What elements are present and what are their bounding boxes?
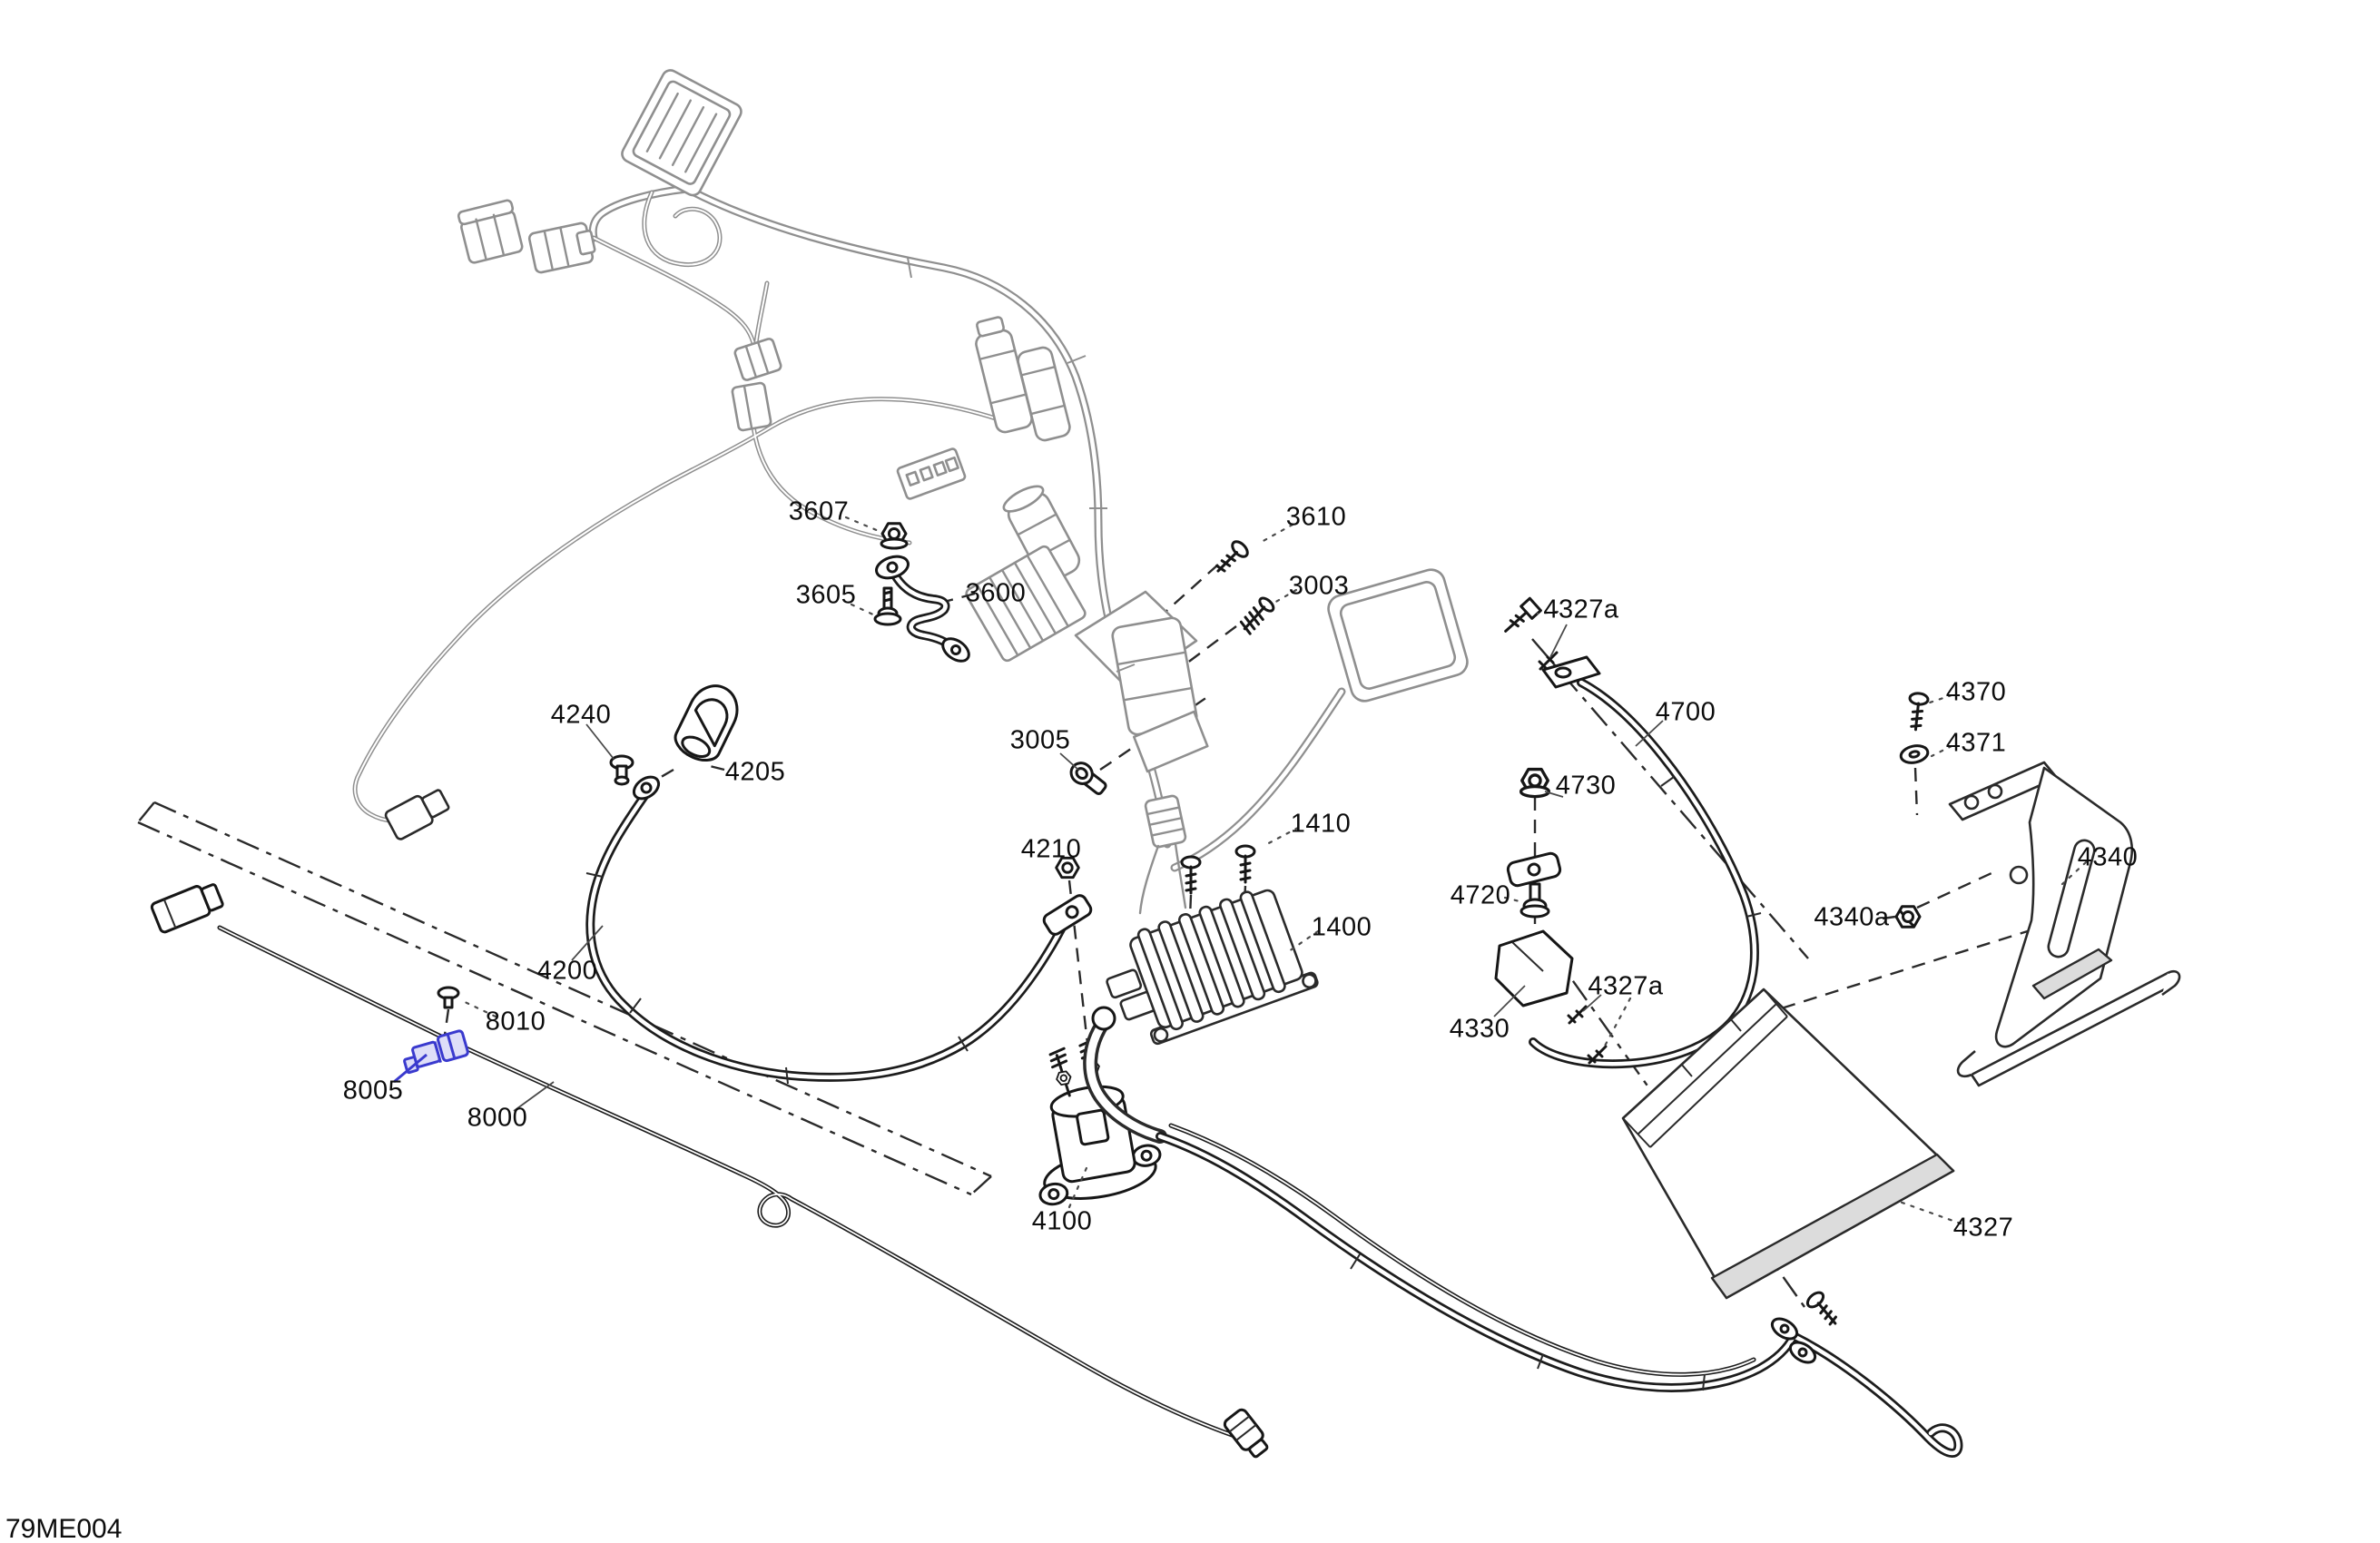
part-label-3610-3: 3610 — [1286, 503, 1347, 533]
part-label-4370-22: 4370 — [1946, 678, 2007, 708]
part-label-1410-10: 1410 — [1291, 810, 1352, 840]
nut-4340a — [1896, 907, 1920, 928]
part-label-4371-23: 4371 — [1946, 729, 2007, 759]
part-label-4210-9: 4210 — [1021, 835, 1082, 865]
part-label-4340-24: 4340 — [2078, 843, 2139, 873]
part-label-4327a-16: 4327a — [1543, 595, 1618, 625]
cable-lug-plate — [1507, 852, 1562, 888]
part-label-3607-0: 3607 — [789, 497, 850, 527]
cable-connector-start — [151, 880, 224, 933]
part-label-4700-17: 4700 — [1656, 698, 1716, 728]
branch-connector — [384, 785, 451, 840]
battery-terminal-screw — [1805, 1290, 1842, 1329]
regulator-1400 — [1094, 880, 1318, 1053]
part-label-8005-13: 8005 — [343, 1076, 404, 1106]
positive-cable-4200 — [586, 772, 1093, 1084]
harness-connector-d — [732, 382, 772, 431]
harness-connector-c — [734, 338, 782, 381]
wiring-harness — [355, 67, 1470, 913]
bushing-4240 — [611, 756, 633, 784]
screw-4327a-top — [1500, 598, 1541, 637]
part-label-3605-1: 3605 — [796, 581, 857, 611]
harness-connector-b — [528, 221, 597, 273]
fuse-block-connector — [897, 447, 966, 499]
pin-4327a-mid — [1569, 1007, 1586, 1023]
part-label-4200-8: 4200 — [537, 957, 598, 987]
part-label-3003-4: 3003 — [1289, 572, 1350, 602]
cable-connector-end — [1223, 1408, 1272, 1460]
terminal-cover-4330 — [1496, 931, 1572, 1006]
part-label-8010-12: 8010 — [486, 1007, 546, 1037]
battery-bracket-4340 — [1950, 762, 2179, 1086]
bolt-4720 — [1521, 884, 1549, 917]
part-label-3005-5: 3005 — [1010, 726, 1071, 756]
regulator-connector — [1145, 795, 1186, 848]
bolt-3605 — [875, 588, 900, 624]
part-label-8000-14: 8000 — [467, 1104, 528, 1134]
diagram-code: 79ME004 — [5, 1514, 122, 1543]
part-label-4327a-21: 4327a — [1588, 972, 1663, 1002]
screw-8010 — [438, 988, 458, 1007]
screw-3003 — [1239, 595, 1276, 634]
screw-3610 — [1212, 539, 1250, 577]
boot-4205 — [670, 678, 746, 767]
washer-4371 — [1899, 743, 1929, 765]
nut-4730 — [1521, 770, 1549, 797]
nut-3607 — [881, 524, 907, 548]
battery-cable-4700 — [1533, 657, 1761, 1064]
part-label-4100-15: 4100 — [1032, 1207, 1093, 1237]
part-label-4240-6: 4240 — [551, 701, 612, 731]
part-label-1400-11: 1400 — [1312, 913, 1372, 943]
part-label-4330-20: 4330 — [1450, 1015, 1510, 1045]
part-label-3600-2: 3600 — [966, 579, 1027, 609]
part-label-4327-26: 4327 — [1953, 1214, 2014, 1243]
zone-boundary-dashes — [138, 802, 991, 1194]
battery-4327 — [1623, 989, 1953, 1298]
part-label-4730-18: 4730 — [1556, 771, 1617, 801]
part-label-4720-19: 4720 — [1451, 881, 1511, 911]
part-label-4205-7: 4205 — [725, 758, 786, 788]
harness-connector-a — [457, 200, 523, 264]
screw-4370 — [1907, 693, 1929, 731]
part-label-4340a-25: 4340a — [1814, 903, 1889, 933]
screws-1410 — [1182, 846, 1254, 893]
diagram-canvas: 3607360536003610300330054240420542004210… — [0, 0, 2380, 1543]
diagram-artwork — [0, 0, 2380, 1543]
ecu-connector — [619, 67, 743, 198]
